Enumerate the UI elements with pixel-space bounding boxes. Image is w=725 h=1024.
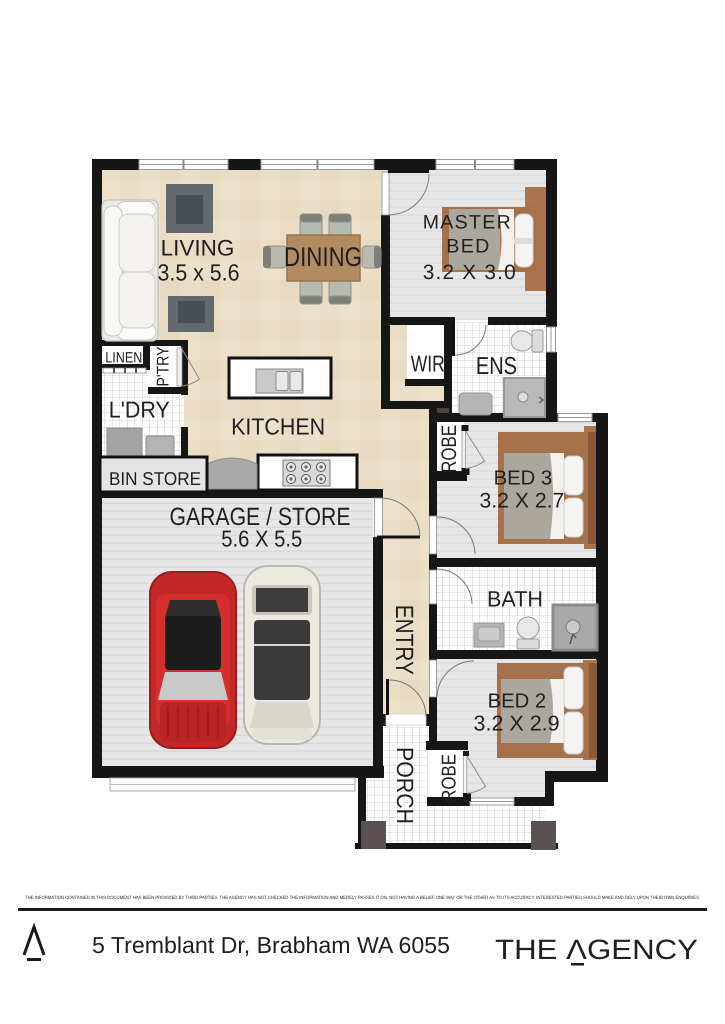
svg-text:3.2 X 2.7: 3.2 X 2.7 [479,490,564,513]
svg-text:3.2 X 2.9: 3.2 X 2.9 [474,712,560,736]
svg-text:L'DRY: L'DRY [109,397,170,423]
svg-text:5 Tremblant Dr, Brabham WA 605: 5 Tremblant Dr, Brabham WA 6055 [92,932,450,958]
svg-text:P'TRY: P'TRY [154,347,173,387]
svg-text:KITCHEN: KITCHEN [231,413,325,439]
svg-text:BED: BED [446,235,489,257]
svg-text:ROBE: ROBE [438,425,461,473]
svg-text:5.6 X 5.5: 5.6 X 5.5 [221,525,302,551]
svg-text:ENTRY: ENTRY [390,605,418,675]
svg-text:THE INFORMATION CONTAINED IN T: THE INFORMATION CONTAINED IN THIS DOCUME… [25,895,700,900]
svg-text:ROBE: ROBE [439,754,461,802]
svg-text:LINEN: LINEN [105,349,142,366]
svg-text:BIN STORE: BIN STORE [109,468,201,489]
svg-text:DINING: DINING [284,242,362,272]
svg-text:THE ΛGENCY: THE ΛGENCY [495,934,698,965]
svg-text:WIR: WIR [411,351,445,377]
svg-text:LIVING: LIVING [161,236,235,261]
svg-text:3.2 X 3.0: 3.2 X 3.0 [423,261,516,284]
svg-text:BATH: BATH [487,586,543,611]
svg-text:MASTER: MASTER [423,212,511,234]
svg-text:ENS: ENS [476,353,517,380]
svg-text:BED 3: BED 3 [494,467,553,489]
svg-text:BED 2: BED 2 [488,690,547,712]
svg-text:PORCH: PORCH [392,747,418,824]
svg-text:3.5 x 5.6: 3.5 x 5.6 [158,260,240,286]
